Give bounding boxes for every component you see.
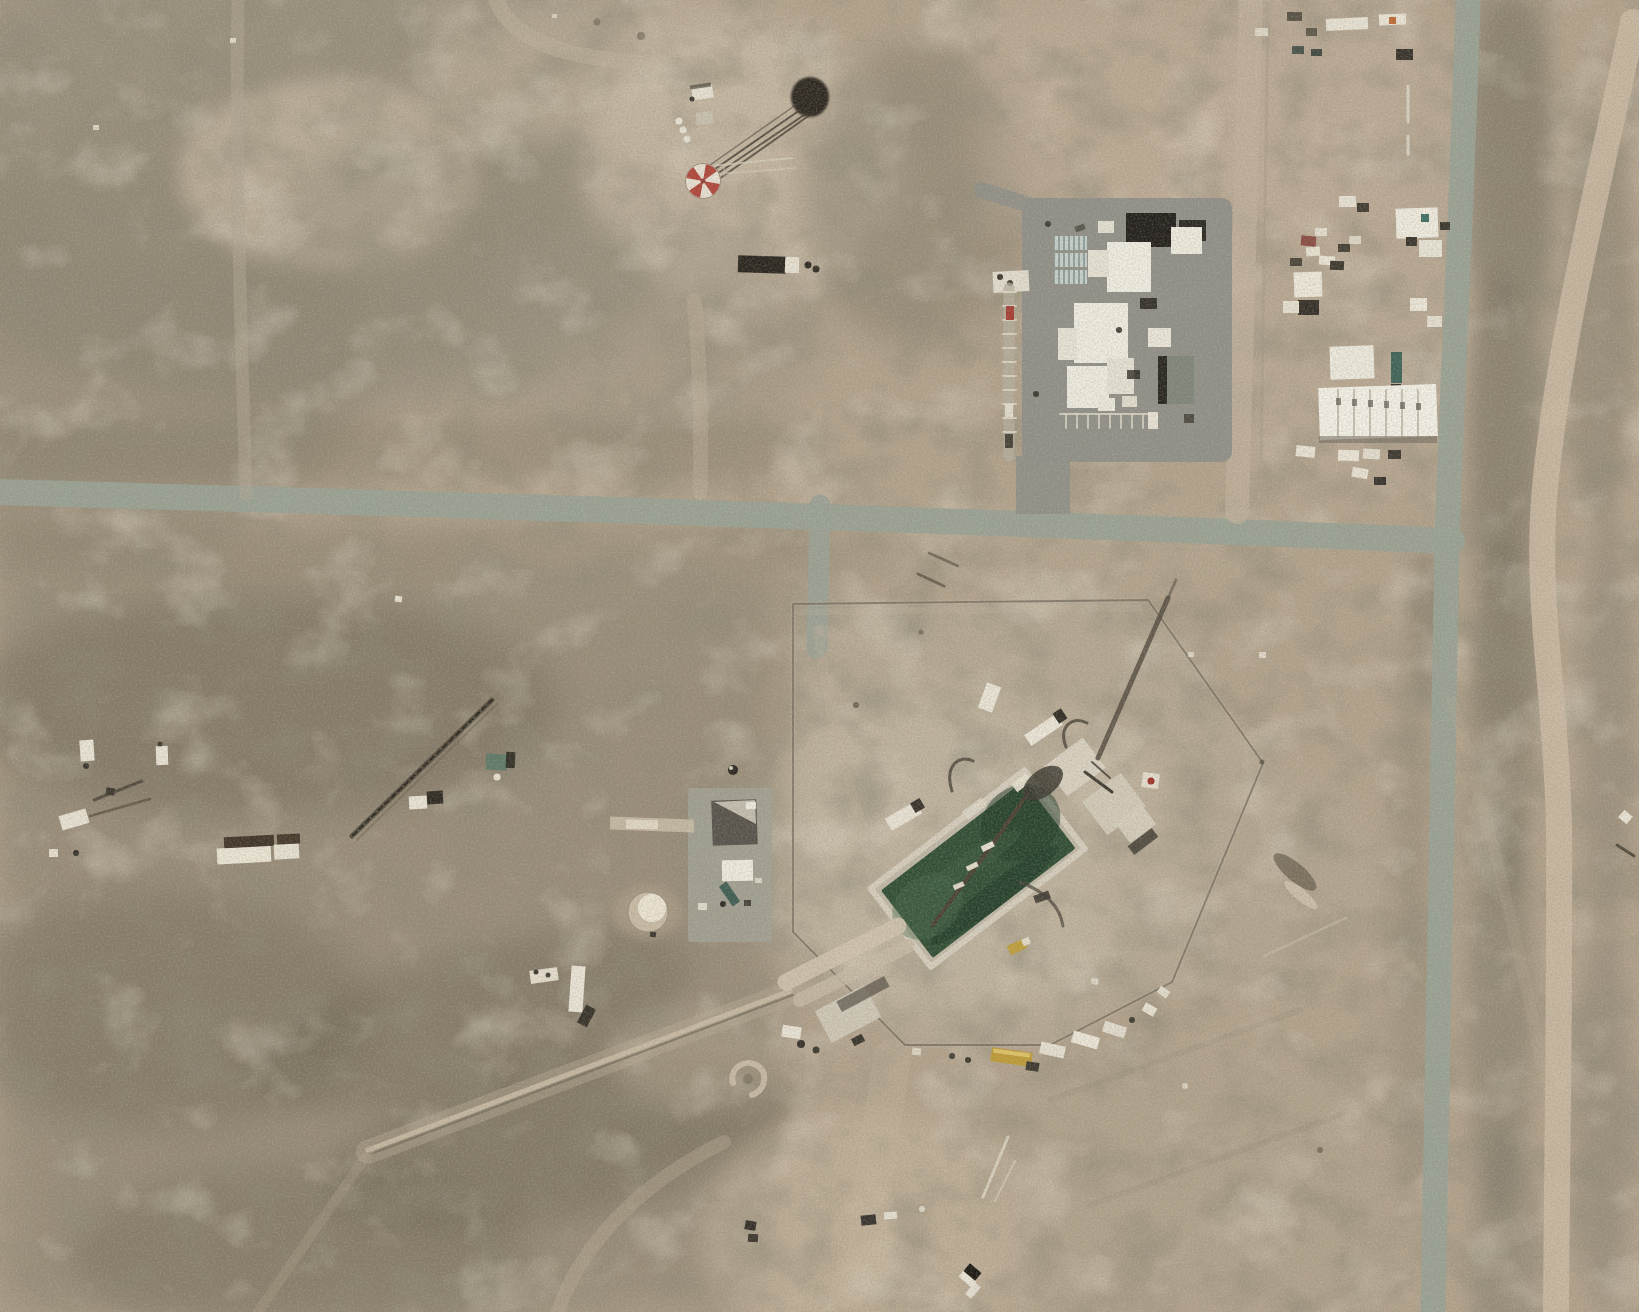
photo-grain-light [0,0,1639,1312]
satellite-canvas [0,0,1639,1312]
grain [0,0,1639,1312]
satellite-image [0,0,1639,1312]
